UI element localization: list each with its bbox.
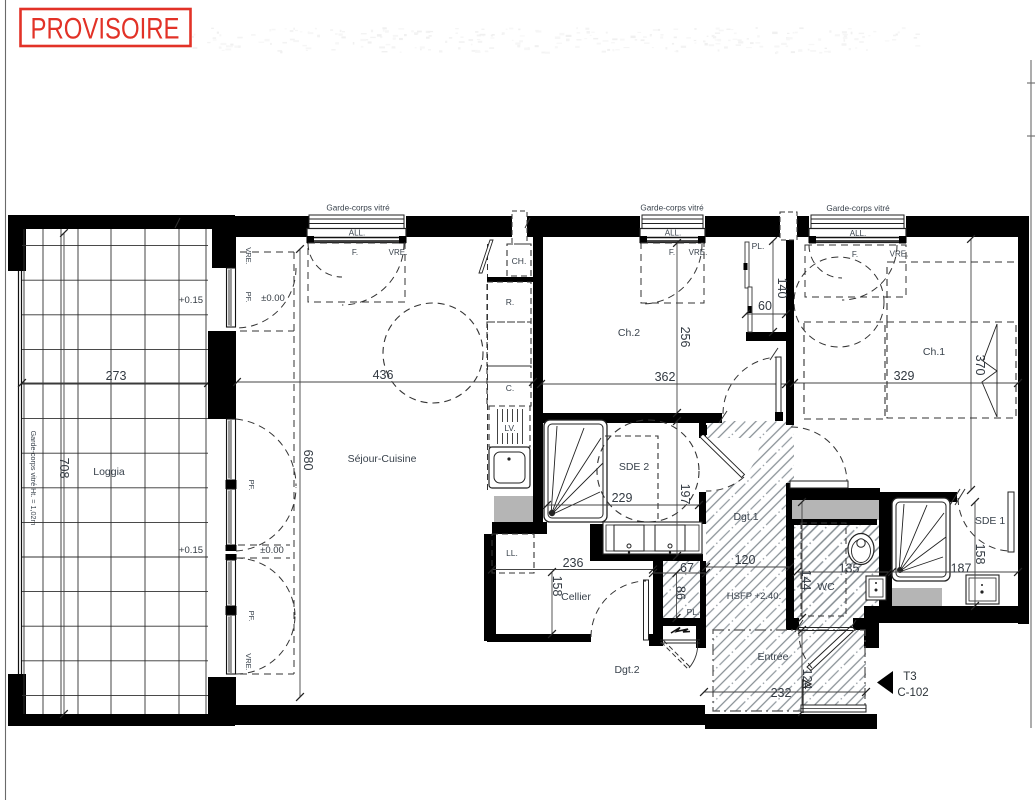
svg-text:144: 144 xyxy=(799,570,813,591)
svg-text:PF.: PF. xyxy=(247,480,256,491)
svg-text:ALL.: ALL. xyxy=(349,229,365,238)
svg-text:67: 67 xyxy=(680,561,694,575)
svg-text:708: 708 xyxy=(57,458,71,479)
svg-text:86: 86 xyxy=(674,586,688,600)
svg-text:Dgt.2: Dgt.2 xyxy=(614,664,639,676)
svg-text:120: 120 xyxy=(735,553,756,567)
svg-text:SDE 2: SDE 2 xyxy=(619,461,650,473)
svg-text:Ch.1: Ch.1 xyxy=(923,346,945,358)
svg-text:R.: R. xyxy=(506,297,515,307)
svg-text:362: 362 xyxy=(655,370,676,384)
svg-text:370: 370 xyxy=(973,355,987,376)
svg-text:Loggia: Loggia xyxy=(93,466,125,478)
svg-text:436: 436 xyxy=(373,368,394,382)
svg-text:Garde-corps vitré: Garde-corps vitré xyxy=(826,204,890,213)
svg-text:F.: F. xyxy=(669,248,675,257)
svg-text:SDE 1: SDE 1 xyxy=(975,515,1006,527)
svg-text:VRE.: VRE. xyxy=(244,247,253,265)
svg-text:PF.: PF. xyxy=(244,292,253,303)
svg-text:187: 187 xyxy=(951,562,972,576)
svg-text:158: 158 xyxy=(550,576,564,597)
svg-text:WC: WC xyxy=(817,581,835,593)
svg-text:Ch.2: Ch.2 xyxy=(618,327,640,339)
svg-text:+0.15: +0.15 xyxy=(179,295,203,306)
svg-text:VRE.: VRE. xyxy=(689,248,708,257)
svg-text:±0.00: ±0.00 xyxy=(260,545,284,556)
svg-text:LV.: LV. xyxy=(504,423,515,433)
svg-text:135: 135 xyxy=(839,562,860,576)
svg-text:Cellier: Cellier xyxy=(561,591,591,603)
svg-text:Garde-corps vitré: Garde-corps vitré xyxy=(326,204,390,213)
svg-text:ALL.: ALL. xyxy=(850,229,866,238)
svg-text:LL.: LL. xyxy=(506,548,518,558)
svg-text:±0.00: ±0.00 xyxy=(261,293,285,304)
svg-text:ALL.: ALL. xyxy=(665,229,681,238)
svg-text:680: 680 xyxy=(301,450,315,471)
svg-text:Entrée: Entrée xyxy=(758,651,789,663)
svg-text:232: 232 xyxy=(771,686,792,700)
svg-text:Garde-corps vitré: Garde-corps vitré xyxy=(640,204,704,213)
svg-text:F.: F. xyxy=(352,248,358,257)
svg-text:256: 256 xyxy=(678,327,692,348)
svg-text:197: 197 xyxy=(678,484,692,505)
svg-text:T3: T3 xyxy=(903,671,916,683)
svg-text:C-102: C-102 xyxy=(897,687,928,699)
svg-text:Séjour-Cuisine: Séjour-Cuisine xyxy=(348,453,417,465)
svg-text:158: 158 xyxy=(973,544,987,565)
svg-text:HSFP +2.40.: HSFP +2.40. xyxy=(727,591,781,602)
svg-text:PROVISOIRE: PROVISOIRE xyxy=(31,13,180,46)
svg-text:+0.15: +0.15 xyxy=(179,545,203,556)
svg-text:273: 273 xyxy=(106,369,127,383)
svg-text:PL.: PL. xyxy=(752,241,765,251)
svg-text:60: 60 xyxy=(758,299,772,313)
svg-text:236: 236 xyxy=(563,556,584,570)
svg-text:VRE.: VRE. xyxy=(244,653,253,671)
svg-text:F.: F. xyxy=(852,250,858,259)
svg-text:Garde-corps vitré Ht. = 1,02m: Garde-corps vitré Ht. = 1,02m xyxy=(29,431,38,526)
svg-text:PF.: PF. xyxy=(247,611,256,622)
svg-text:329: 329 xyxy=(894,369,915,383)
svg-text:140: 140 xyxy=(775,278,789,299)
svg-text:PL.: PL. xyxy=(687,607,700,617)
svg-text:229: 229 xyxy=(612,491,633,505)
svg-text:C.: C. xyxy=(506,383,515,393)
svg-text:CH.: CH. xyxy=(512,256,527,266)
svg-text:Dgt.1: Dgt.1 xyxy=(733,511,758,523)
